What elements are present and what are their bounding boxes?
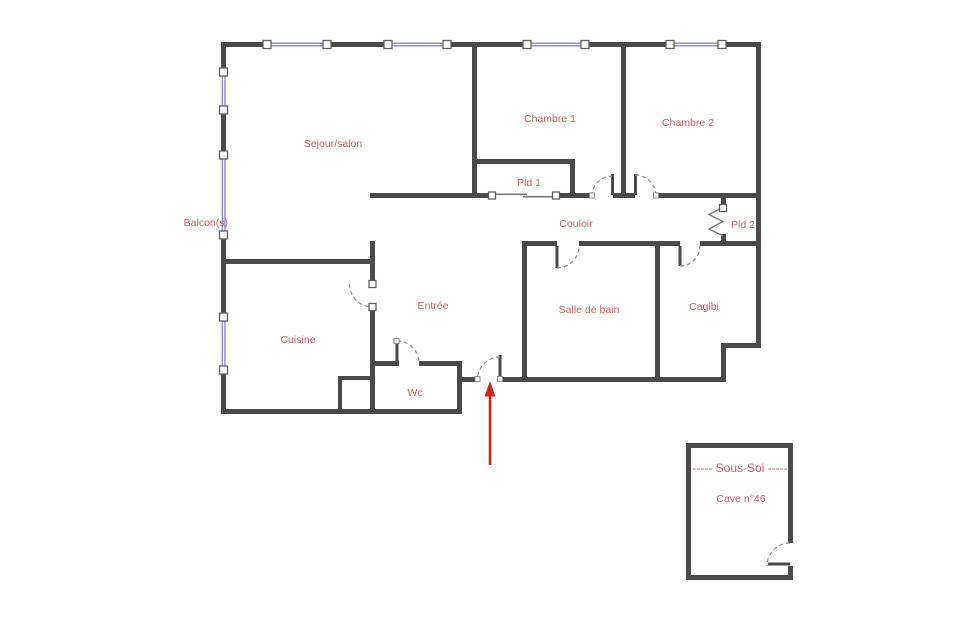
window-handle [581,41,589,49]
room-label-pld2: Pld 2 [731,219,755,231]
door-hinge [394,339,399,344]
wall-left [221,368,226,414]
wall-left [221,108,226,157]
window-handle [384,41,392,49]
window [527,43,585,46]
wall-pld1-top [472,159,575,164]
doors [350,174,727,382]
window-handle [220,366,228,374]
window-handle [323,41,331,49]
window-handle [443,41,451,49]
wall-top [583,42,672,47]
room-label-chambre2: Chambre 2 [662,117,714,129]
room-label-pld1: Pld 1 [517,177,541,189]
wall-corridor-south [522,241,557,246]
room-label-sejour: Sejour/salon [304,138,363,150]
window-handle [523,41,531,49]
wall-corridor-north [370,193,490,198]
basement-cave-label: Cave n°46 [716,493,765,505]
floor-plan-drawing: Sejour/salon Balcon(s) Chambre 1 Chambre… [0,0,960,643]
door-hinge [369,304,376,311]
wall-bottom-right [500,377,726,382]
wall-wc-right [457,363,462,414]
cave-wall-right [788,566,793,580]
wall-kitchen-box-left [338,376,342,413]
wall-wc-top [373,361,399,366]
room-label-balcon: Balcon(s) [184,217,228,229]
door-hinge [720,205,727,212]
wall-corridor-north [656,193,758,198]
door-swing-arc-entrance [478,357,501,380]
door-swing-arc-bathroom [557,246,579,268]
sliding-door [492,194,558,196]
door-swing-arc-wc [397,341,419,363]
window [670,43,722,46]
basement-title: ----- Sous-Sol ----- [692,461,787,475]
window-handle [263,41,271,49]
entrance-arrow [485,381,496,465]
room-label-cagibi: Cagibi [689,301,719,313]
door-leaf-cagibi [679,246,682,266]
window-handle [220,68,228,76]
wall-entree-cuisine [370,307,375,414]
wall-corridor-north [556,193,592,198]
wall-left [221,233,226,319]
room-label-cuisine: Cuisine [280,334,315,346]
door-leaf-cave [768,563,790,566]
wall-corridor-north [613,193,635,198]
wall-top [445,42,529,47]
room-label-wc: Wc [407,387,422,399]
window-handle [220,313,228,321]
window-handle [220,231,228,239]
wall-corridor-south [579,241,680,246]
wall-chambre1-chambre2 [621,42,626,198]
wall-kitchen-box-top [338,376,373,380]
wall-notch-v [721,343,726,381]
cave-wall-top [686,443,793,448]
room-label-couloir: Couloir [559,218,593,230]
window [388,43,447,46]
door-leaf-chambre1 [611,174,614,195]
cave-wall-left [686,443,691,580]
wall-bathroom-left [522,241,527,381]
wall-pld1-right [570,159,575,198]
door-hinge [654,193,659,198]
floor-plan: Sejour/salon Balcon(s) Chambre 1 Chambre… [0,0,960,643]
wall-corridor-south [700,241,761,246]
sliding-door-handle [553,192,560,199]
door-hinge [475,377,480,382]
cave-wall-right [788,443,793,543]
room-label-entree: Entrée [418,300,449,312]
door-hinge [369,281,376,288]
window-handle [718,41,726,49]
window [222,72,225,110]
wall-notch-h [721,343,761,348]
wall-top [221,42,269,47]
room-label-chambre1: Chambre 1 [524,113,576,125]
door-hinge [498,377,503,382]
wall-wc-top [419,361,462,366]
window [222,317,225,370]
door-swing-arc-cagibi [680,246,700,266]
inner-walls [221,42,761,414]
wall-top [325,42,390,47]
window-handle [220,106,228,114]
entrance-arrow-head [485,381,496,397]
wall-sejour-chambre1 [472,42,477,198]
door-hinge [590,193,595,198]
window-handle [666,41,674,49]
window [267,43,327,46]
door-leaf-chambre2 [634,174,637,195]
cave-wall-bottom [686,575,793,580]
room-label-salle-de-bain: Salle de bain [559,304,620,316]
wall-cuisine-top [221,259,373,264]
outer-walls [221,42,761,414]
wall-bathroom-cagibi [655,241,660,381]
door-swing-arc-chambre2 [635,175,656,196]
window-handle [220,151,228,159]
sliding-door-handle [489,192,496,199]
door-leaf-bathroom [556,246,559,268]
